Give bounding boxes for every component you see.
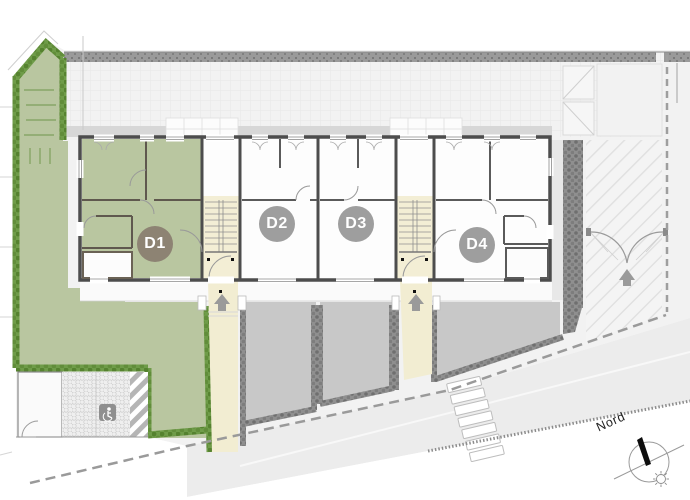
rear-wall-band: [64, 52, 690, 62]
sun-icon: [653, 471, 669, 487]
unit-badge-d2[interactable]: D2: [259, 206, 295, 242]
building: [77, 135, 554, 294]
unit-badge-d1[interactable]: D1: [137, 226, 173, 262]
front-path: [80, 281, 552, 301]
accessible-parking-icon: [99, 404, 116, 421]
driveway: [552, 140, 668, 342]
hedge-east: [563, 140, 583, 308]
site-plan: D1 D2 D3 D4 Nord: [0, 0, 690, 500]
parking-southwest: [16, 372, 148, 437]
striped-strip: [130, 372, 148, 437]
unit-badge-d4[interactable]: D4: [459, 227, 495, 263]
site-plan-drawing: [0, 0, 690, 500]
garage-room: [18, 372, 62, 437]
yard-d2: [243, 302, 316, 422]
unit-badge-d3[interactable]: D3: [338, 206, 374, 242]
